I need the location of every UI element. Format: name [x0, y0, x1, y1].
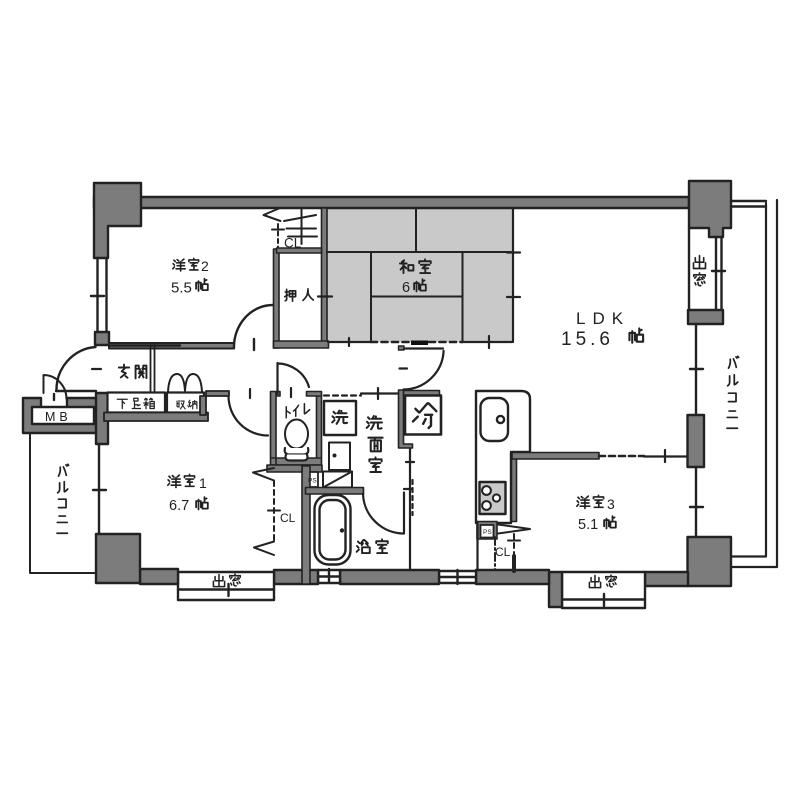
svg-text:6.7: 6.7 [169, 498, 189, 514]
svg-text:PS: PS [483, 529, 492, 536]
svg-text:1: 1 [199, 475, 207, 491]
svg-text:15.6: 15.6 [561, 329, 614, 350]
svg-text:MB: MB [45, 410, 72, 424]
svg-text:PS: PS [308, 478, 317, 485]
svg-text:CL: CL [284, 236, 302, 251]
svg-text:5.1: 5.1 [578, 517, 598, 533]
svg-text:CL: CL [495, 545, 511, 559]
svg-text:6: 6 [402, 280, 410, 296]
svg-text:LDK: LDK [576, 309, 630, 328]
svg-text:5.5: 5.5 [171, 280, 192, 297]
svg-text:2: 2 [201, 258, 209, 274]
svg-text:3: 3 [607, 496, 615, 512]
svg-text:CL: CL [280, 511, 296, 525]
